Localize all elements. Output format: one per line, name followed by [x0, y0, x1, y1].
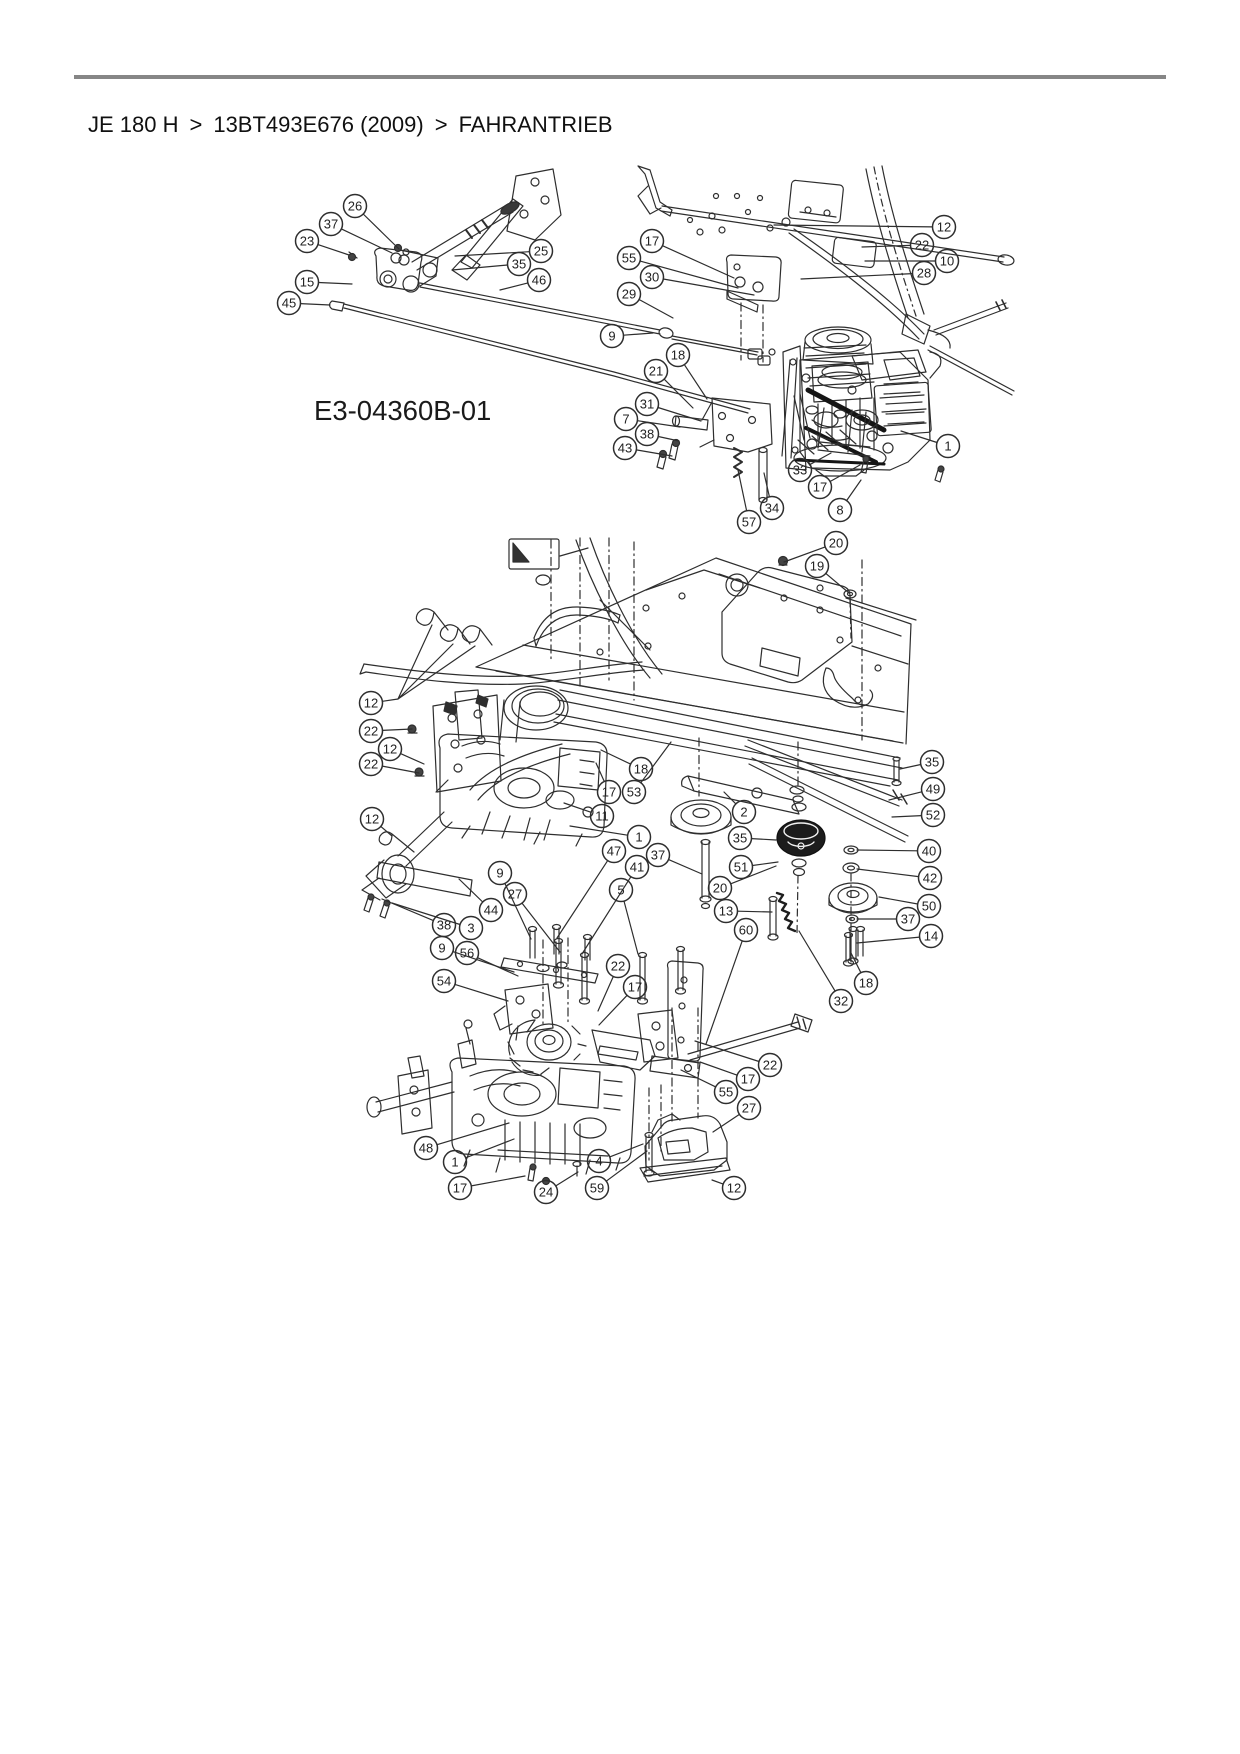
svg-text:34: 34 [765, 501, 779, 516]
svg-text:41: 41 [630, 860, 644, 875]
svg-text:43: 43 [618, 441, 632, 456]
svg-text:1: 1 [635, 830, 642, 845]
svg-text:48: 48 [419, 1141, 433, 1156]
svg-text:19: 19 [810, 559, 824, 574]
svg-text:7: 7 [622, 412, 629, 427]
svg-text:54: 54 [437, 974, 451, 989]
svg-text:4: 4 [595, 1154, 602, 1169]
svg-text:9: 9 [496, 866, 503, 881]
svg-text:1: 1 [451, 1155, 458, 1170]
svg-text:31: 31 [640, 397, 654, 412]
svg-text:35: 35 [925, 755, 939, 770]
svg-text:49: 49 [926, 782, 940, 797]
svg-text:12: 12 [364, 696, 378, 711]
svg-text:32: 32 [834, 994, 848, 1009]
svg-text:27: 27 [508, 887, 522, 902]
svg-text:9: 9 [608, 329, 615, 344]
svg-text:24: 24 [539, 1185, 553, 1200]
svg-text:17: 17 [645, 234, 659, 249]
svg-text:1: 1 [944, 439, 951, 454]
svg-text:27: 27 [742, 1101, 756, 1116]
svg-text:35: 35 [733, 831, 747, 846]
svg-text:11: 11 [595, 809, 609, 824]
svg-text:51: 51 [734, 860, 748, 875]
svg-text:47: 47 [607, 844, 621, 859]
svg-text:22: 22 [364, 724, 378, 739]
svg-text:50: 50 [922, 899, 936, 914]
svg-text:12: 12 [365, 812, 379, 827]
svg-text:20: 20 [829, 536, 843, 551]
svg-text:17: 17 [741, 1072, 755, 1087]
svg-text:5: 5 [617, 883, 624, 898]
svg-text:12: 12 [383, 742, 397, 757]
svg-text:12: 12 [727, 1181, 741, 1196]
svg-text:17: 17 [628, 980, 642, 995]
svg-text:37: 37 [901, 912, 915, 927]
svg-text:55: 55 [719, 1085, 733, 1100]
svg-text:53: 53 [627, 785, 641, 800]
svg-text:13: 13 [719, 904, 733, 919]
svg-text:17: 17 [602, 785, 616, 800]
svg-text:44: 44 [484, 903, 498, 918]
svg-text:60: 60 [739, 923, 753, 938]
svg-text:25: 25 [534, 244, 548, 259]
svg-text:12: 12 [937, 220, 951, 235]
svg-text:46: 46 [532, 273, 546, 288]
svg-text:26: 26 [348, 199, 362, 214]
svg-text:30: 30 [645, 270, 659, 285]
svg-text:23: 23 [300, 234, 314, 249]
svg-text:45: 45 [282, 296, 296, 311]
svg-text:29: 29 [622, 287, 636, 302]
svg-text:10: 10 [940, 254, 954, 269]
svg-text:8: 8 [836, 503, 843, 518]
svg-text:57: 57 [742, 515, 756, 530]
svg-text:9: 9 [438, 941, 445, 956]
svg-text:18: 18 [859, 976, 873, 991]
svg-text:37: 37 [324, 217, 338, 232]
svg-text:22: 22 [915, 238, 929, 253]
svg-text:2: 2 [740, 805, 747, 820]
svg-text:52: 52 [926, 808, 940, 823]
svg-text:15: 15 [300, 275, 314, 290]
svg-text:22: 22 [364, 757, 378, 772]
svg-text:22: 22 [611, 959, 625, 974]
svg-text:17: 17 [813, 480, 827, 495]
svg-text:E3-04360B-01: E3-04360B-01 [314, 395, 491, 426]
svg-text:21: 21 [649, 364, 663, 379]
svg-text:20: 20 [713, 881, 727, 896]
svg-text:3: 3 [467, 921, 474, 936]
svg-text:40: 40 [922, 844, 936, 859]
svg-text:22: 22 [763, 1058, 777, 1073]
svg-text:14: 14 [924, 929, 938, 944]
svg-text:28: 28 [917, 266, 931, 281]
svg-text:18: 18 [671, 348, 685, 363]
svg-text:37: 37 [651, 848, 665, 863]
svg-text:17: 17 [453, 1181, 467, 1196]
svg-text:55: 55 [622, 251, 636, 266]
svg-text:18: 18 [634, 762, 648, 777]
svg-text:38: 38 [640, 427, 654, 442]
svg-text:59: 59 [590, 1181, 604, 1196]
svg-text:56: 56 [460, 946, 474, 961]
svg-text:33: 33 [793, 463, 807, 478]
svg-text:35: 35 [512, 257, 526, 272]
svg-text:42: 42 [923, 871, 937, 886]
